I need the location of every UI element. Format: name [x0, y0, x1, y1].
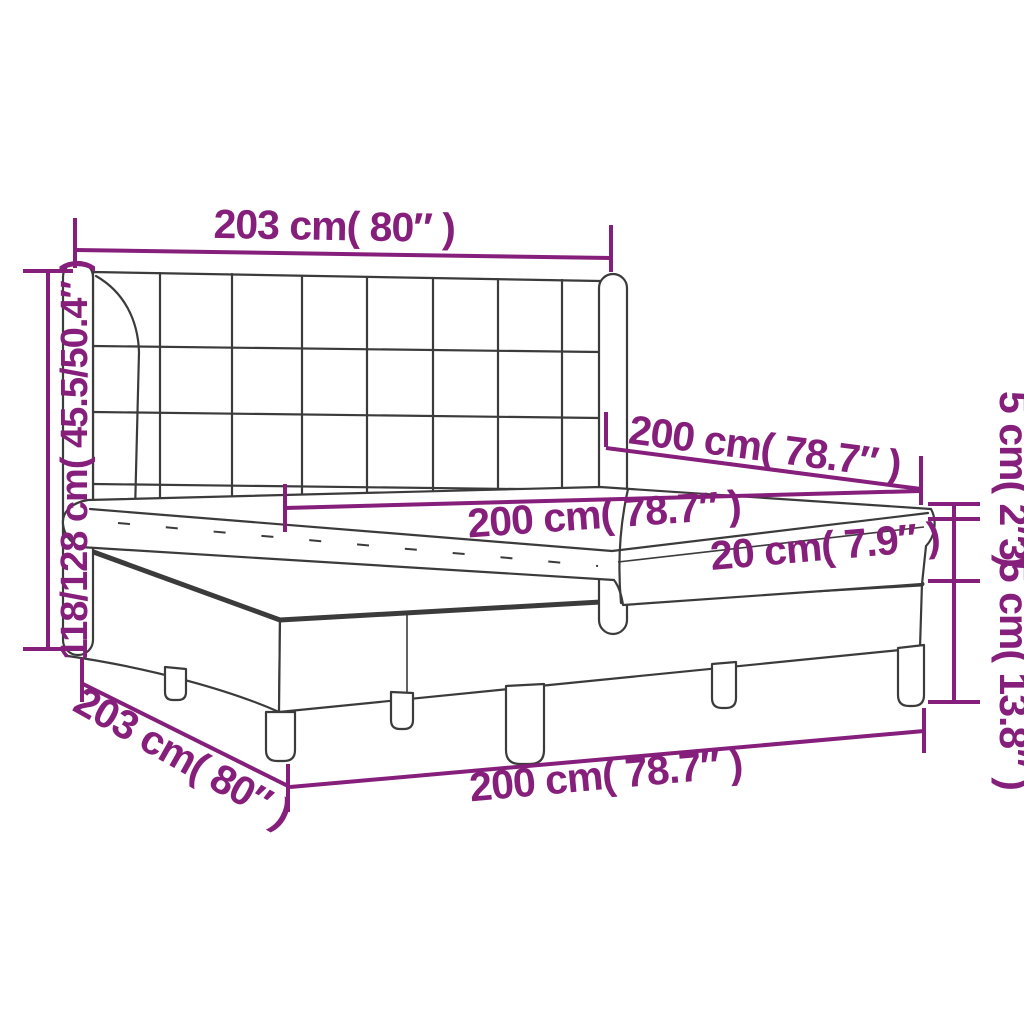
- dim-headboard-width: 203 cm( 80″ ): [75, 201, 611, 272]
- bed-leg: [898, 645, 924, 706]
- bed-leg: [165, 667, 186, 700]
- dimension-diagram: 203 cm( 80″ ) 118/128 cm( 45.5/50.4″ ) 2…: [0, 0, 1024, 1024]
- bed-diagram-canvas: 203 cm( 80″ ) 118/128 cm( 45.5/50.4″ ) 2…: [0, 0, 1024, 1024]
- headboard-face: [93, 272, 600, 516]
- dim-line: [75, 250, 611, 258]
- headboard: [93, 272, 600, 516]
- dim-headboard-width-label: 203 cm( 80″ ): [213, 201, 455, 251]
- bed-leg: [712, 662, 736, 708]
- bed-leg: [506, 684, 544, 764]
- bed-leg: [266, 712, 295, 761]
- dim-bed-height-label: 118/128 cm( 45.5/50.4″ ): [54, 260, 96, 660]
- dim-right-stack: 5 cm( 2″ ) 35 cm( 13.8″ ): [928, 391, 1024, 790]
- dim-bed-height: 118/128 cm( 45.5/50.4″ ): [23, 260, 96, 660]
- dim-bed-length-label: 200 cm( 78.7″ ): [626, 406, 903, 487]
- bed-leg: [391, 692, 413, 729]
- dim-base-width: 200 cm( 78.7″ ): [290, 708, 924, 810]
- dim-base-height-label: 35 cm( 13.8″ ): [991, 538, 1024, 790]
